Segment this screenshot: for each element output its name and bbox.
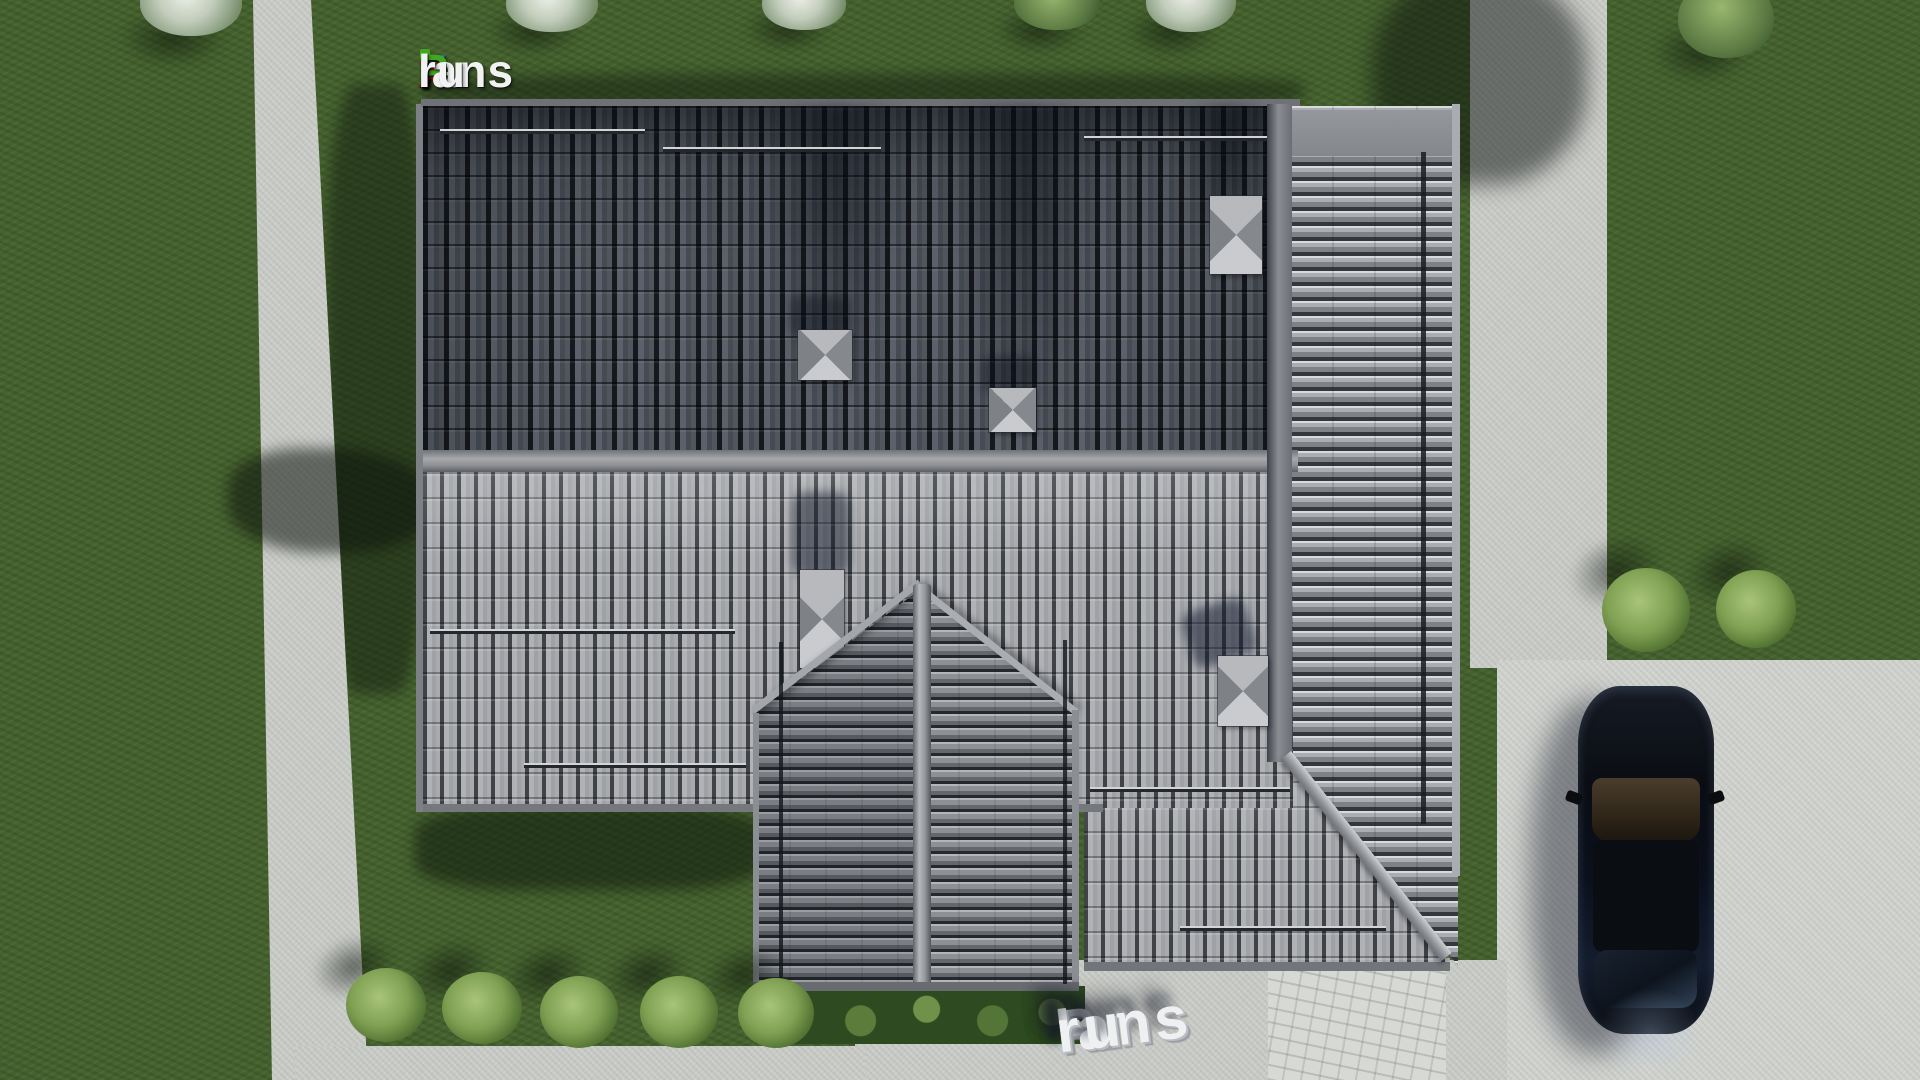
house-shadow-bottom	[415, 806, 765, 890]
bottom-pavement-strip	[295, 1046, 865, 1080]
snow-guard-bar	[1090, 787, 1290, 792]
aerial-house-render: FixPlans.ru Plans.ru	[0, 0, 1920, 1080]
roof-eave-southeast	[1084, 962, 1450, 971]
porch-gable-ridge	[913, 584, 931, 990]
car-hood-sheen	[1598, 988, 1694, 1064]
snow-guard-bar	[440, 129, 645, 134]
car-windshield	[1592, 778, 1700, 842]
roof-skylight	[1210, 196, 1262, 274]
bush	[1602, 568, 1690, 652]
bush	[1716, 570, 1796, 648]
logo-letters-ru: ru	[418, 44, 466, 98]
car-roof-panel	[1593, 840, 1699, 952]
roof-skylight	[989, 388, 1036, 432]
snow-guard-bar	[1084, 136, 1289, 141]
roof-skylight	[798, 330, 852, 380]
snow-guard-bar	[1180, 926, 1386, 931]
roof-east-top-band	[1290, 110, 1456, 156]
roof-fascia-right	[1452, 104, 1460, 876]
porch-gutter-right	[1063, 640, 1067, 984]
vent-shadow	[982, 356, 1036, 392]
roof-ridge-cap	[423, 450, 1298, 472]
hip-ridge-vertical	[1267, 104, 1292, 762]
porch-gable-side-right	[1072, 710, 1079, 988]
porch-gutter-left	[779, 642, 783, 984]
ground-letters-ru: ru	[1052, 990, 1128, 1067]
snow-guard-bar	[663, 147, 881, 152]
snow-guard-bar	[430, 629, 735, 634]
snow-guard-bar	[524, 763, 746, 768]
chimney	[1218, 656, 1268, 726]
bush	[738, 978, 814, 1048]
gutter-downline	[1421, 152, 1426, 824]
chimney-shadow	[792, 492, 850, 576]
